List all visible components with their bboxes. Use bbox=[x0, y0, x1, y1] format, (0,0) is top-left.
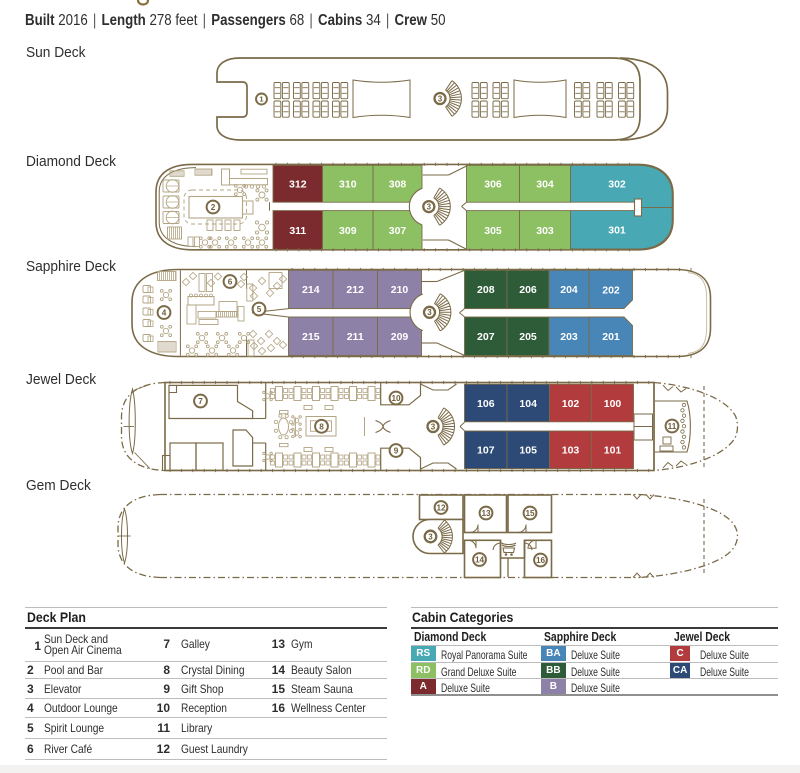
svg-text:4: 4 bbox=[162, 309, 167, 318]
svg-text:214: 214 bbox=[302, 284, 320, 296]
svg-text:206: 206 bbox=[519, 284, 537, 296]
svg-text:308: 308 bbox=[389, 179, 407, 191]
svg-text:209: 209 bbox=[391, 331, 409, 343]
svg-text:12: 12 bbox=[436, 504, 446, 513]
svg-text:307: 307 bbox=[389, 225, 407, 237]
svg-text:309: 309 bbox=[339, 225, 357, 237]
svg-text:306: 306 bbox=[484, 179, 502, 191]
svg-text:311: 311 bbox=[289, 225, 306, 237]
svg-text:102: 102 bbox=[562, 398, 580, 410]
svg-text:7: 7 bbox=[198, 397, 203, 406]
svg-text:207: 207 bbox=[477, 331, 495, 343]
svg-text:312: 312 bbox=[289, 179, 307, 191]
svg-text:8: 8 bbox=[319, 422, 324, 431]
svg-text:5: 5 bbox=[257, 305, 262, 314]
svg-text:3: 3 bbox=[427, 308, 432, 317]
svg-text:16: 16 bbox=[536, 556, 546, 565]
svg-text:3: 3 bbox=[438, 94, 443, 103]
svg-text:101: 101 bbox=[604, 445, 622, 457]
svg-text:304: 304 bbox=[536, 179, 554, 191]
svg-text:305: 305 bbox=[484, 225, 502, 237]
svg-text:211: 211 bbox=[347, 331, 364, 343]
svg-text:10: 10 bbox=[391, 394, 401, 403]
svg-text:204: 204 bbox=[560, 284, 578, 296]
svg-text:15: 15 bbox=[525, 509, 535, 518]
svg-text:104: 104 bbox=[519, 398, 537, 410]
svg-text:6: 6 bbox=[228, 278, 233, 287]
svg-text:3: 3 bbox=[427, 203, 432, 212]
svg-text:208: 208 bbox=[477, 284, 495, 296]
svg-text:212: 212 bbox=[346, 284, 364, 296]
svg-text:215: 215 bbox=[302, 331, 320, 343]
svg-text:3: 3 bbox=[431, 422, 436, 431]
svg-text:103: 103 bbox=[562, 445, 580, 457]
svg-text:303: 303 bbox=[536, 225, 554, 237]
svg-text:201: 201 bbox=[602, 331, 620, 343]
svg-text:301: 301 bbox=[608, 225, 626, 237]
svg-text:100: 100 bbox=[604, 398, 622, 410]
svg-text:9: 9 bbox=[394, 447, 399, 456]
svg-text:203: 203 bbox=[560, 331, 578, 343]
svg-text:106: 106 bbox=[477, 398, 495, 410]
svg-text:107: 107 bbox=[477, 445, 495, 457]
svg-text:3: 3 bbox=[428, 532, 433, 541]
svg-text:14: 14 bbox=[475, 556, 485, 565]
svg-text:302: 302 bbox=[608, 178, 626, 190]
svg-text:310: 310 bbox=[339, 179, 357, 191]
svg-text:202: 202 bbox=[602, 284, 620, 296]
svg-text:210: 210 bbox=[391, 284, 409, 296]
svg-text:205: 205 bbox=[519, 331, 537, 343]
svg-text:1: 1 bbox=[259, 95, 263, 104]
svg-text:13: 13 bbox=[481, 509, 491, 518]
svg-text:105: 105 bbox=[519, 445, 537, 457]
svg-text:11: 11 bbox=[668, 422, 677, 431]
svg-text:2: 2 bbox=[211, 203, 216, 212]
